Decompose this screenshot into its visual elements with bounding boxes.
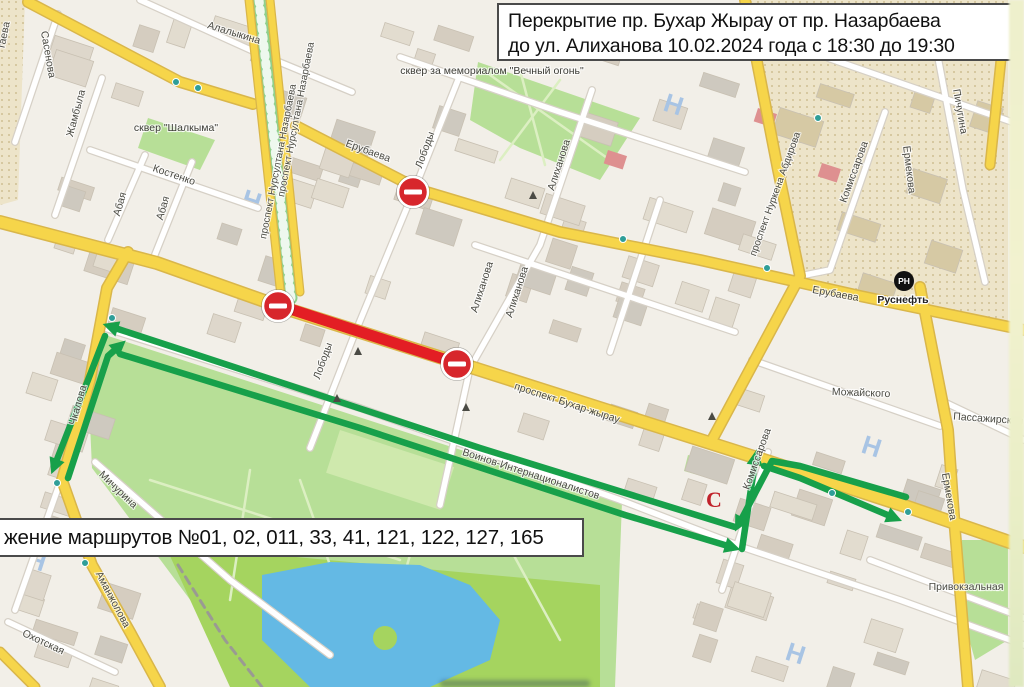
map-canvas: HHHHHHРНРуснефтьСАлалыкинаСасеноваЖамбыл… [0,0,1024,687]
closure-info-line1: Перекрытие пр. Бухар Жырау от пр. Назарб… [508,9,1008,34]
street-label: Можайского [832,386,891,400]
map-screenshot: HHHHHHРНРуснефтьСАлалыкинаСасеноваЖамбыл… [0,0,1024,687]
letter-marker-c: С [706,487,722,512]
no-entry-sign [441,348,474,381]
fuel-station-icon: РН [894,271,914,291]
closure-info-line2: до ул. Алиханова 10.02.2024 года с 18:30… [508,34,1008,59]
street-label: сквер за мемориалом "Вечный огонь" [400,65,584,77]
routes-info-box: жение маршрутов №01, 02, 011, 33, 41, 12… [0,518,584,557]
no-entry-sign [397,176,430,209]
street-label: сквер "Шалкыма" [134,122,218,134]
fuel-station-label: Руснефть [877,294,929,306]
svg-text:РН: РН [898,276,910,286]
map-edge-artifact [1009,0,1024,687]
closure-info-box: Перекрытие пр. Бухар Жырау от пр. Назарб… [497,3,1018,61]
street-label: Привокзальная [929,581,1004,593]
routes-info-text: жение маршрутов №01, 02, 011, 33, 41, 12… [4,526,544,549]
watermark-fragment [440,680,590,687]
no-entry-sign [262,290,295,323]
